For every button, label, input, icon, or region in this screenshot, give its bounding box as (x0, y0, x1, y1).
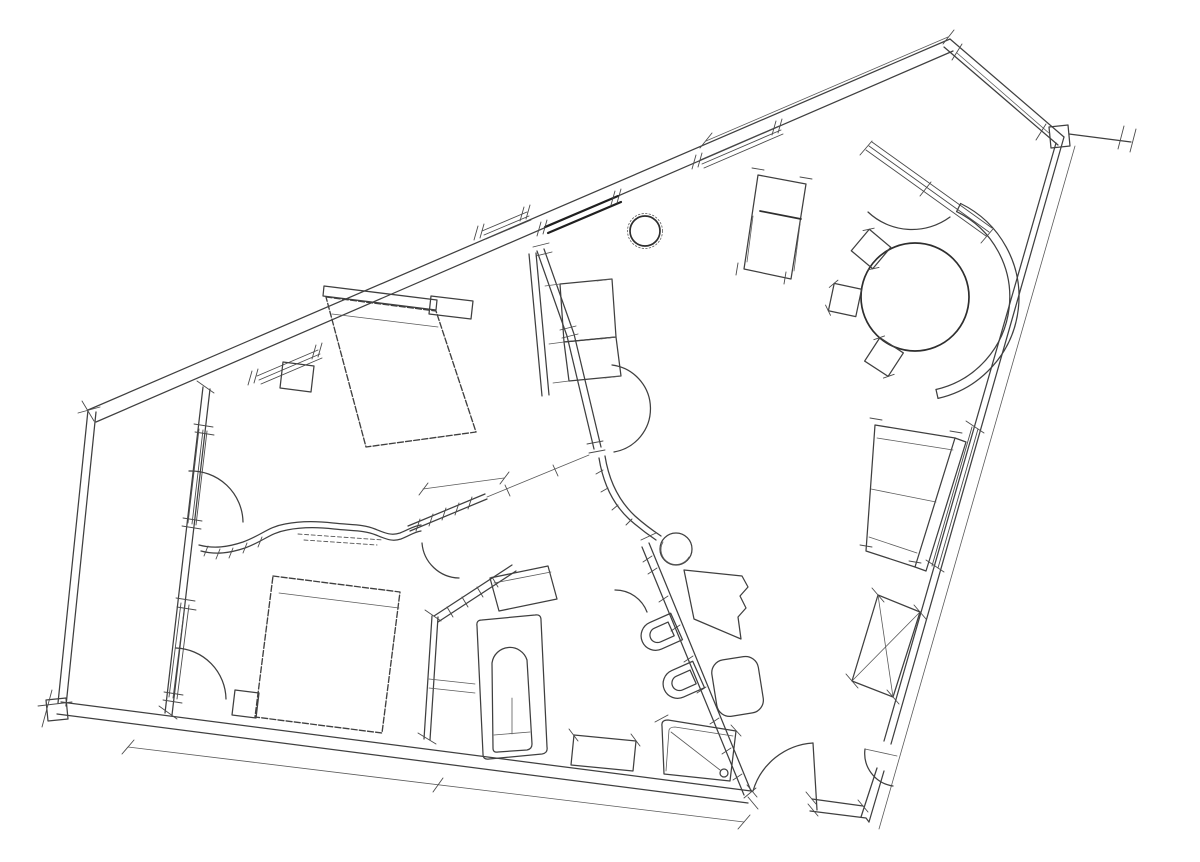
shower-ticks (655, 715, 741, 736)
topright-wall-outer (950, 39, 1064, 137)
entry-door-arc (753, 743, 813, 791)
banquette-arc-inner (936, 212, 1010, 390)
curved-partition-hatch (204, 537, 262, 559)
window-top-3-dark (545, 196, 621, 233)
chaise-backrest (760, 211, 801, 219)
column-circle (630, 216, 660, 246)
bed1-nightstand-left (280, 362, 314, 392)
chaise-rails (747, 216, 800, 271)
curved-corridor-wall-a (605, 456, 661, 536)
chaise-ticks (736, 168, 812, 284)
bathroom-cabinet (571, 735, 636, 771)
left-wall-inner (66, 412, 96, 706)
dining-table (861, 243, 969, 351)
chaise-outline (744, 175, 806, 279)
top-wall-inner (96, 51, 953, 422)
partition-wall-ticks (533, 243, 605, 453)
window-top-4 (700, 126, 783, 168)
shower-drain (720, 769, 728, 777)
corner-extension-ticks (1118, 126, 1136, 152)
shower-inner (666, 727, 733, 771)
partition-wall-b (544, 249, 601, 447)
wardrobe-box-1 (560, 279, 616, 342)
wall-end-ticks-p1 (78, 401, 100, 421)
bed2-outline (255, 576, 400, 733)
left-wall-outer (58, 410, 88, 703)
column-hatch-ring (628, 214, 663, 249)
window-topright-ticks (952, 44, 1046, 140)
corner-post-top-right (1049, 125, 1070, 148)
top-dimension-line (706, 37, 948, 141)
closet-back-panel-a (529, 254, 542, 396)
straight-band-hatch (416, 497, 472, 531)
toilet (636, 613, 682, 655)
bathroom-shelf-lines (429, 679, 475, 693)
bathroom-corridor-wall-a (649, 543, 751, 791)
sofa-outline (866, 425, 955, 567)
sofa-cushion-divider (871, 489, 936, 502)
right-dimension-line (879, 146, 1075, 829)
topright-wall-inner (944, 47, 1058, 145)
dining-chair-3 (865, 338, 904, 377)
straight-band-extension (487, 455, 589, 497)
inner-left-wall-a (165, 387, 203, 713)
bed2-pillow-line (279, 593, 399, 608)
bathtub-detail-lines (494, 698, 530, 735)
entry-door2-leaf (865, 749, 897, 756)
right-wall-inner (861, 143, 1056, 817)
entry-jamb-ticks (747, 785, 868, 816)
floor-plan-page (0, 0, 1200, 862)
bedroom2-closet-wall-a (434, 565, 512, 616)
bottom-dimension-line (128, 747, 744, 822)
right-wall-window-ticks (926, 421, 984, 572)
curved-partition-dash-1 (298, 534, 383, 540)
closet-back-panel-b (536, 253, 549, 395)
bathroom-corridor-wall-b (642, 547, 744, 795)
top-wall-outer (88, 39, 950, 410)
sofa-ticks (860, 418, 962, 563)
straight-band-b (410, 499, 487, 531)
bedroom2-closet-inner-line (494, 572, 551, 583)
bottom-wall-outer (57, 714, 869, 822)
right-wall-outer (869, 137, 1064, 822)
shower-outer (662, 720, 736, 781)
curved-partition-dash-2 (304, 540, 377, 545)
window-topright-hatch (957, 53, 1050, 134)
bathtub-outer (477, 615, 547, 759)
wash-basin-circle (660, 533, 692, 565)
banquette-end-caps (936, 204, 961, 399)
bed1-dimension-line (423, 478, 504, 489)
bed1-outline (326, 297, 476, 447)
dining-door-arc (868, 212, 950, 230)
inner-left-wall-junction-ticks (159, 381, 214, 719)
corridor-bench (710, 655, 765, 719)
banquette-arc-outer (938, 204, 1019, 399)
window-top-2 (482, 212, 531, 239)
dining-chair-1 (851, 229, 890, 268)
bedroom2-closet-wall-b (438, 571, 516, 622)
living-room-door-arc (612, 365, 650, 452)
dining-chair-2 (828, 283, 861, 316)
curved-partition-a (199, 522, 421, 548)
bed1-headboard (323, 286, 437, 310)
bathroom-corridor-wall-hatch (643, 556, 742, 780)
floor-plan-canvas (0, 0, 1200, 862)
straight-band-extension-ticks (505, 465, 558, 496)
balcony-door-2-arc (176, 648, 226, 699)
shower-diagonal (671, 732, 720, 770)
bed1-pillow-line (332, 314, 438, 327)
corridor-door-arc (422, 543, 459, 578)
vanity-counter (684, 570, 748, 639)
bathroom-door-arc (615, 590, 647, 612)
wardrobe-connectors (545, 279, 621, 383)
